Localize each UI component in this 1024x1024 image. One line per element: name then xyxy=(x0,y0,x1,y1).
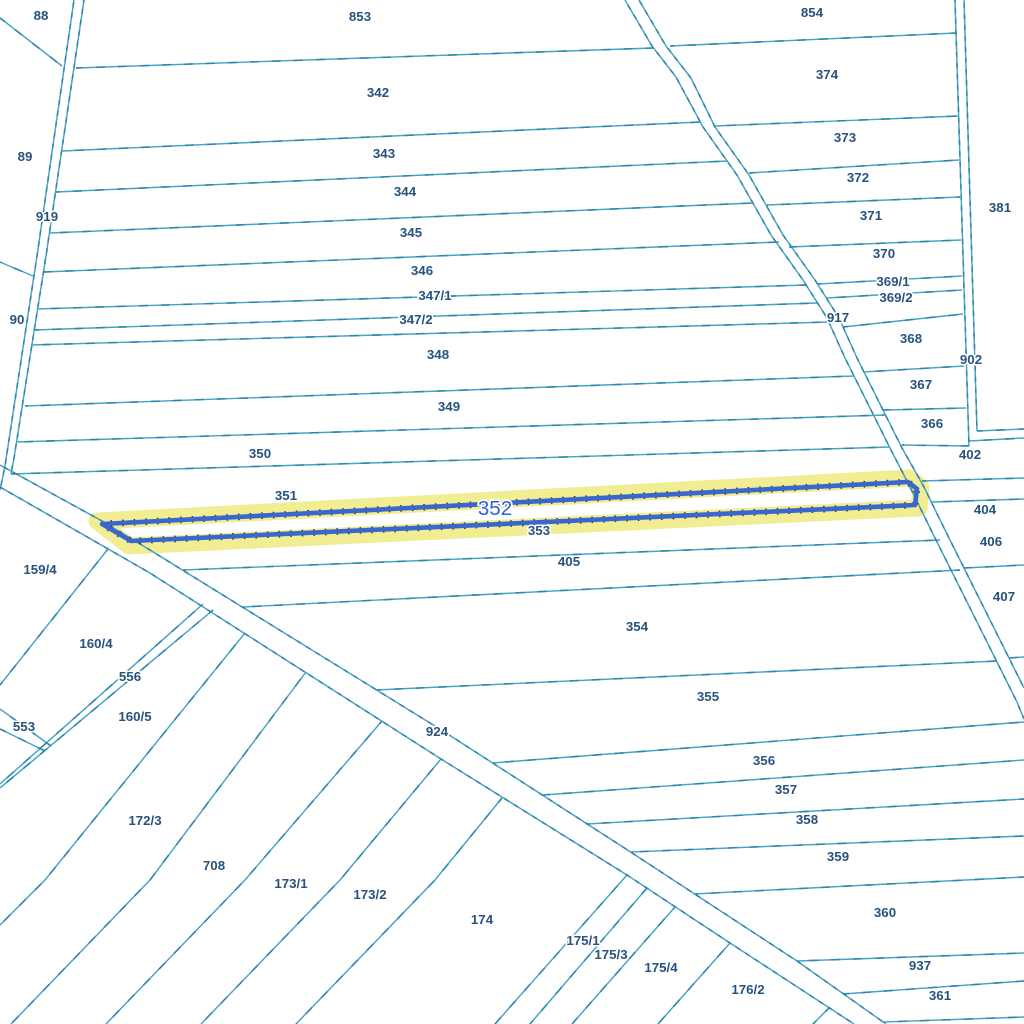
svg-text:366: 366 xyxy=(921,416,943,431)
svg-text:937: 937 xyxy=(909,958,931,973)
svg-text:90: 90 xyxy=(10,312,25,327)
svg-text:160/5: 160/5 xyxy=(118,709,152,724)
svg-text:359: 359 xyxy=(827,849,849,864)
svg-text:175/1: 175/1 xyxy=(566,933,600,948)
svg-text:175/4: 175/4 xyxy=(644,960,678,975)
svg-text:174: 174 xyxy=(471,912,494,927)
svg-text:361: 361 xyxy=(929,988,952,1003)
svg-text:405: 405 xyxy=(558,554,581,569)
svg-text:173/2: 173/2 xyxy=(353,887,386,902)
svg-text:342: 342 xyxy=(367,85,389,100)
svg-text:373: 373 xyxy=(834,130,856,145)
svg-text:367: 367 xyxy=(910,377,932,392)
svg-text:355: 355 xyxy=(697,689,720,704)
svg-text:347/1: 347/1 xyxy=(418,288,452,303)
svg-text:556: 556 xyxy=(119,669,141,684)
svg-text:173/1: 173/1 xyxy=(274,876,308,891)
svg-text:370: 370 xyxy=(873,246,895,261)
svg-text:360: 360 xyxy=(874,905,896,920)
svg-text:357: 357 xyxy=(775,782,797,797)
svg-text:354: 354 xyxy=(626,619,649,634)
svg-text:175/3: 175/3 xyxy=(594,947,627,962)
svg-text:402: 402 xyxy=(959,447,981,462)
svg-text:89: 89 xyxy=(18,149,33,164)
svg-text:347/2: 347/2 xyxy=(399,312,432,327)
svg-text:353: 353 xyxy=(528,523,550,538)
svg-text:902: 902 xyxy=(960,352,982,367)
svg-text:348: 348 xyxy=(427,347,449,362)
svg-text:372: 372 xyxy=(847,170,869,185)
svg-text:708: 708 xyxy=(203,858,225,873)
svg-text:351: 351 xyxy=(275,488,298,503)
svg-text:358: 358 xyxy=(796,812,818,827)
svg-text:346: 346 xyxy=(411,263,433,278)
svg-text:404: 404 xyxy=(974,502,997,517)
svg-text:350: 350 xyxy=(249,446,271,461)
svg-text:553: 553 xyxy=(13,719,35,734)
svg-text:352: 352 xyxy=(478,497,512,520)
svg-text:406: 406 xyxy=(980,534,1002,549)
svg-text:159/4: 159/4 xyxy=(23,562,57,577)
svg-text:371: 371 xyxy=(860,208,883,223)
svg-text:924: 924 xyxy=(426,724,449,739)
svg-text:381: 381 xyxy=(989,200,1012,215)
svg-text:917: 917 xyxy=(827,310,849,325)
svg-text:160/4: 160/4 xyxy=(79,636,113,651)
svg-text:374: 374 xyxy=(816,67,839,82)
svg-text:356: 356 xyxy=(753,753,775,768)
svg-text:369/2: 369/2 xyxy=(879,290,912,305)
svg-text:343: 343 xyxy=(373,146,395,161)
svg-text:407: 407 xyxy=(993,589,1015,604)
svg-text:176/2: 176/2 xyxy=(731,982,764,997)
svg-text:344: 344 xyxy=(394,184,417,199)
svg-text:854: 854 xyxy=(801,5,824,20)
svg-text:88: 88 xyxy=(34,8,49,23)
svg-text:369/1: 369/1 xyxy=(876,274,910,289)
svg-text:345: 345 xyxy=(400,225,423,240)
svg-text:368: 368 xyxy=(900,331,922,346)
svg-text:853: 853 xyxy=(349,9,371,24)
svg-text:172/3: 172/3 xyxy=(128,813,161,828)
svg-text:919: 919 xyxy=(36,209,58,224)
svg-text:349: 349 xyxy=(438,399,460,414)
